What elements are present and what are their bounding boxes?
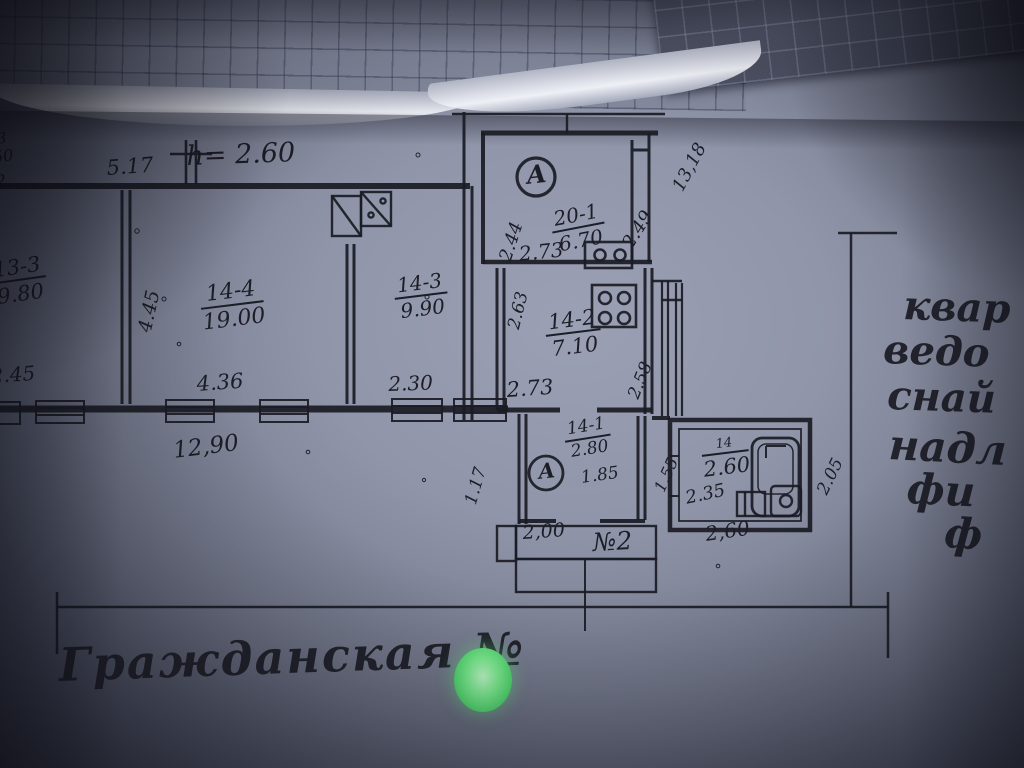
edge-fragment-2: 50 <box>0 147 14 166</box>
room-label-bathroom: 142.60 <box>700 434 752 481</box>
margin-note-line-4: надл <box>888 424 1008 472</box>
margin-note-line-6: ф <box>943 512 984 557</box>
axis-marker-a-bottom: А <box>537 459 556 482</box>
dimension-2-73-top: 2.73 <box>518 239 564 264</box>
room-label-14-3: 14-39.90 <box>392 270 450 324</box>
room-label-14-4: 14-419.00 <box>198 276 267 336</box>
stove-icon <box>332 192 391 236</box>
dimension-5-17: 5.17 <box>106 155 154 179</box>
dimension-4-36: 4.36 <box>196 371 244 395</box>
dimension-2-60-bottom: 2,60 <box>704 518 751 544</box>
ceiling-height-note: h= 2.60 <box>186 139 296 170</box>
dimension-2-30: 2.30 <box>388 372 433 394</box>
dimension-2-73-kitchen: 2.73 <box>506 377 554 401</box>
dimension-2-45: 2.45 <box>0 363 36 386</box>
room-label-13-3: 13-39.80 <box>0 252 50 309</box>
room-label-14-1: 14-12.80 <box>562 415 614 463</box>
margin-note-line-1: квар <box>903 286 1012 330</box>
duct-shaft-walls <box>652 281 682 416</box>
margin-note-line-2: ведо <box>883 330 991 374</box>
green-marker-dot <box>454 648 512 712</box>
room-label-14-2: 14-27.10 <box>543 305 604 362</box>
dimension-2-00: 2,00 <box>522 521 566 543</box>
margin-note-line-3: снай <box>887 376 997 420</box>
axis-marker-a-top: А <box>525 161 548 188</box>
photo-of-floor-plan: 5.17 h= 2.60 13-39.80 14-419.00 14-39.90… <box>0 0 1024 768</box>
entrance-number-label: №2 <box>592 528 633 555</box>
margin-note-line-5: фи <box>906 468 977 514</box>
